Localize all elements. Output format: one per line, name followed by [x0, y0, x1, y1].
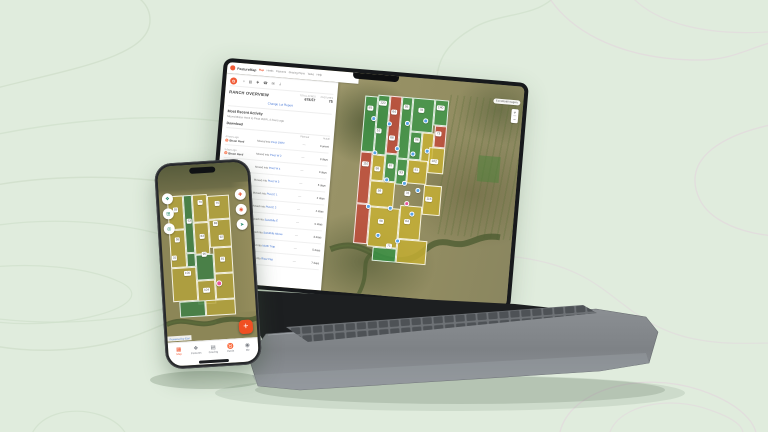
- tab-item[interactable]: ♉ Herds: [222, 344, 240, 354]
- phone-device: 5570766388588392319610081104 ❖⊞◎ ✚◉➤ Pow…: [154, 158, 262, 369]
- tool-icon: ➤: [240, 221, 245, 227]
- tab-item[interactable]: ▤ Grazing: [204, 345, 222, 355]
- phone-screen: 5570766388588392319610081104 ❖⊞◎ ✚◉➤ Pow…: [157, 161, 259, 366]
- tab-label: Me: [246, 350, 250, 353]
- scene: 8512064957814052889673110586793811025976…: [0, 0, 768, 432]
- tab-label: Grazing: [209, 352, 219, 355]
- laptop-base: [0, 0, 768, 432]
- tab-item[interactable]: ▦ Map: [170, 348, 188, 358]
- tab-label: Herds: [227, 351, 234, 354]
- tool-icon: ⊞: [166, 211, 171, 217]
- phone-map-markers: [167, 192, 238, 320]
- tool-icon: ❖: [165, 196, 170, 202]
- add-button[interactable]: +: [238, 319, 253, 334]
- tab-item[interactable]: ❖ Pastures: [187, 346, 205, 356]
- tool-icon: ✚: [238, 191, 243, 197]
- tool-icon: ◉: [239, 206, 244, 212]
- tab-item[interactable]: ◉ Me: [239, 343, 257, 353]
- tab-label: Pastures: [191, 353, 202, 356]
- tool-icon: ◎: [167, 226, 172, 232]
- tab-label: Map: [176, 354, 181, 357]
- herd-location-marker[interactable]: [216, 280, 222, 286]
